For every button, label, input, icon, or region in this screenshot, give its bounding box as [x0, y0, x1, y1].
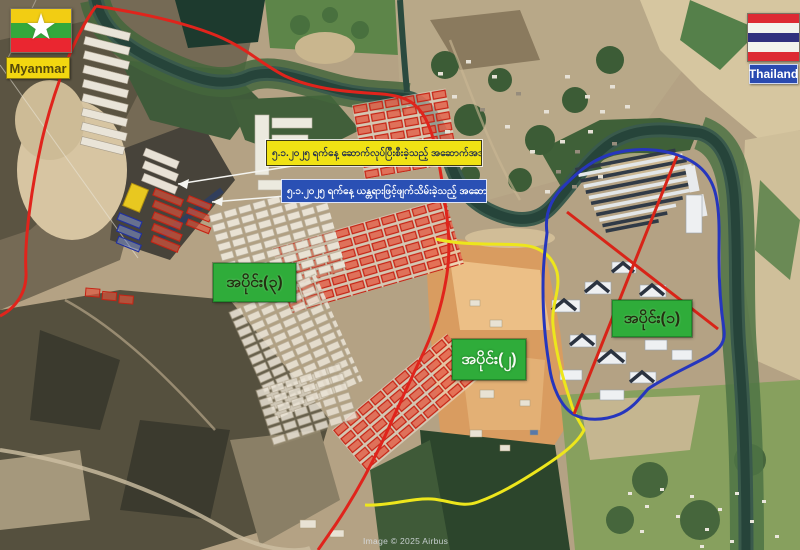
callout-buildings-demolished: ၅.၁.၂၀၂၅ ရက်နေ့ ယန္တရားဖြင့်ဖျက်သိမ်းခဲ့… — [281, 179, 487, 203]
map-canvas — [0, 0, 800, 550]
thailand-flag-icon — [747, 13, 800, 62]
thailand-country-label: Thailand — [749, 64, 798, 84]
star-icon: ★ — [11, 5, 71, 48]
myanmar-flag-icon: ★ — [10, 8, 72, 53]
imagery-attribution: Image © 2025 Airbus — [363, 536, 448, 546]
callout-buildings-completed: ၅.၁.၂၀၂၅ ရက်နေ့ ဆောက်လုပ်ပြီးစီးခဲ့သည့် … — [266, 140, 482, 166]
section2-label: အပိုင်း(၂) — [452, 339, 526, 380]
myanmar-country-label: Myanmar — [6, 57, 70, 79]
section3-label: အပိုင်း(၃) — [213, 263, 296, 302]
annotated-satellite-map: ★ Myanmar Thailand ၅.၁.၂၀၂၅ ရက်နေ့ ဆောက်… — [0, 0, 800, 550]
section1-label: အပိုင်း(၁) — [612, 300, 692, 337]
